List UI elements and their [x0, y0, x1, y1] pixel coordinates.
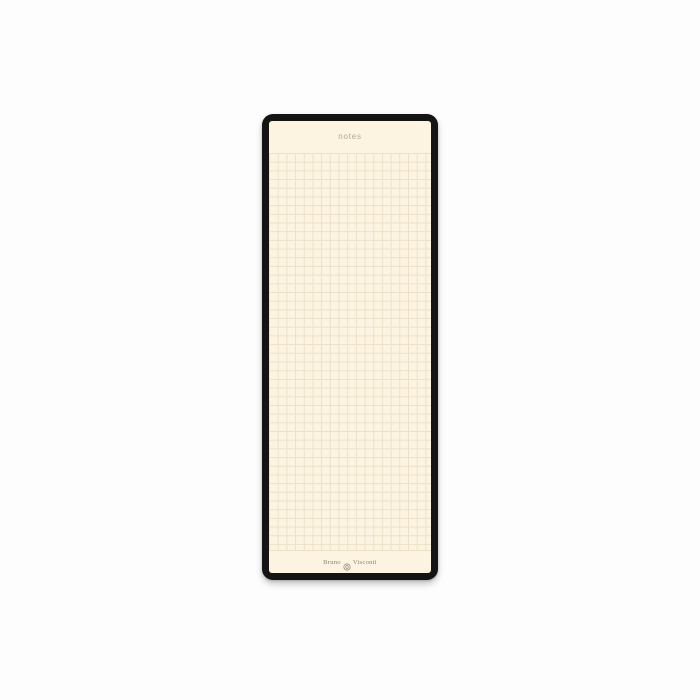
- paper-footer: Bruno Visconti: [269, 551, 431, 573]
- brand-name-right: Visconti: [353, 559, 377, 566]
- notepad-paper: notes Bruno Visconti: [269, 121, 431, 573]
- brand-name-left: Bruno: [323, 559, 341, 566]
- photo-canvas: notes Bruno Visconti: [0, 0, 700, 700]
- notepad-cover: notes Bruno Visconti: [262, 114, 438, 580]
- brand-emblem-icon: [343, 558, 351, 566]
- paper-header: notes: [269, 121, 431, 153]
- notes-title: notes: [338, 133, 362, 141]
- grid-paper-area: [269, 153, 431, 551]
